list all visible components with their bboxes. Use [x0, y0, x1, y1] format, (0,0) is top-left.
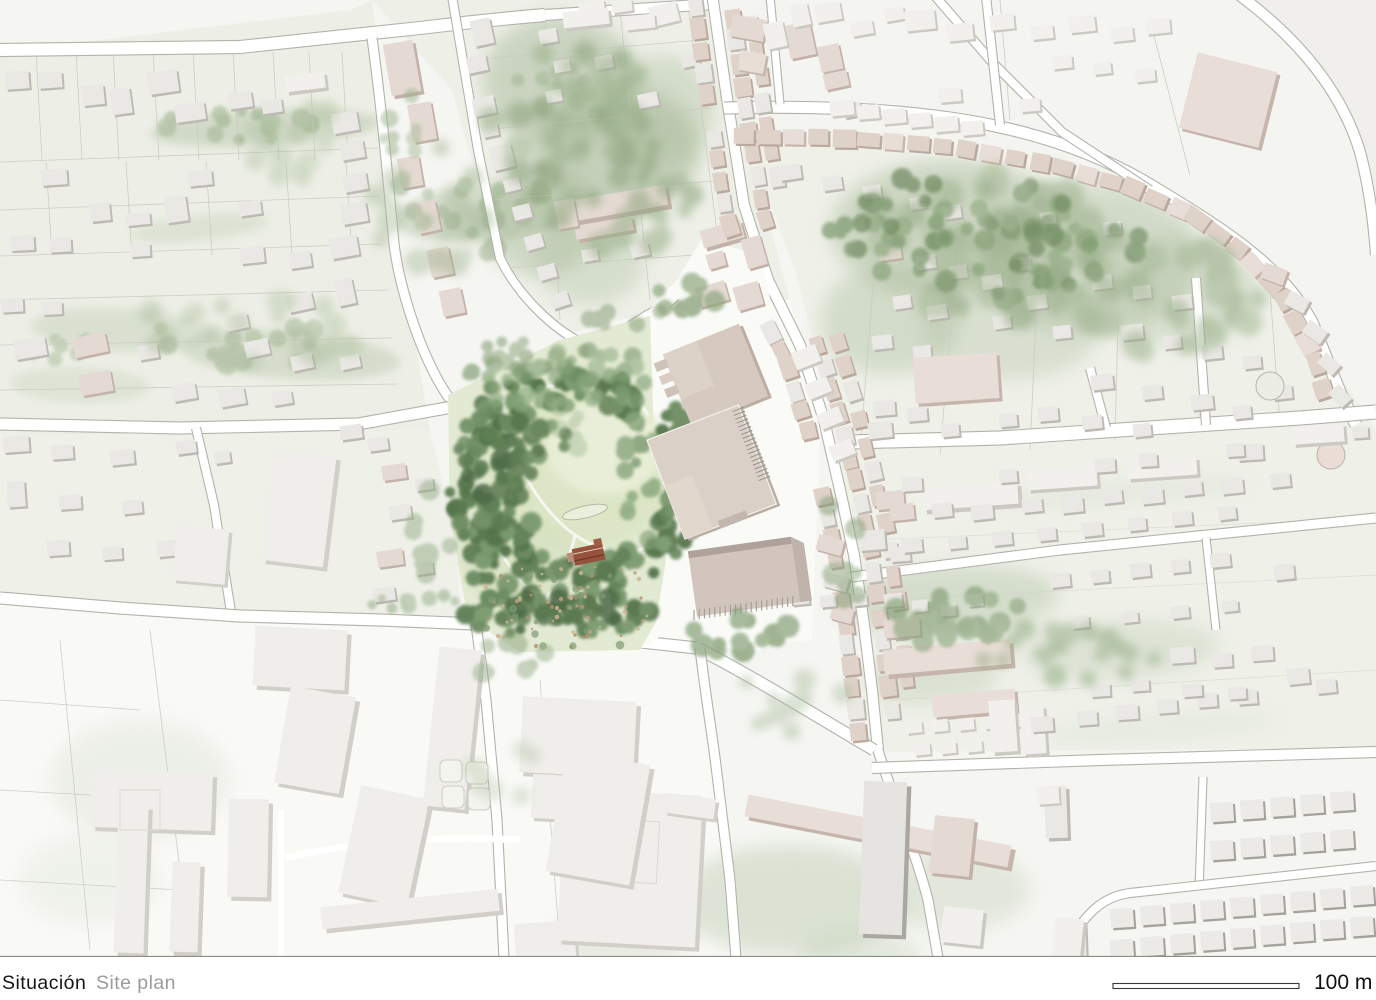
svg-text:100 m: 100 m: [1314, 971, 1372, 994]
svg-text:Situación: Situación: [2, 972, 86, 994]
svg-text:Site plan: Site plan: [96, 972, 176, 994]
